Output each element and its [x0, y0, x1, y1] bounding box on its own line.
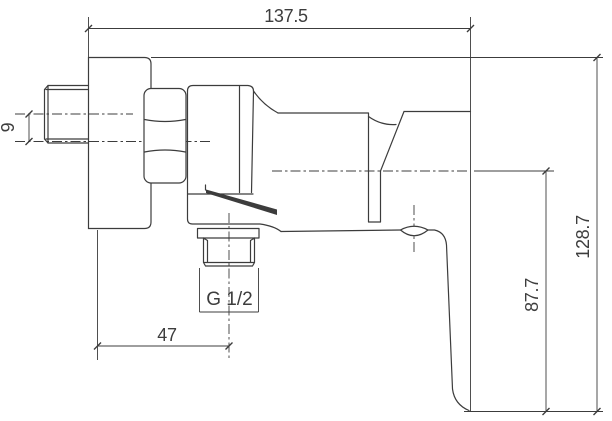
mixer-drawing-svg: 137.5 9 47 87.7 128.7 G 1/2 [0, 0, 612, 421]
dim-overall-length-label: 137.5 [264, 6, 308, 26]
dimension-lines-group [29, 17, 603, 412]
handle-collar-arc [369, 117, 397, 125]
cap-body-fillet [254, 91, 279, 113]
handle-blade [428, 230, 469, 411]
centerlines-group [15, 114, 470, 358]
dim-overall-height-label: 128.7 [573, 215, 593, 259]
dim-outlet-distance-label: 47 [157, 325, 177, 345]
escutcheon-cap [188, 86, 282, 232]
spout-wedge [206, 190, 277, 216]
fixture-outline-group [45, 58, 471, 411]
outlet-thread-size-label: G 1/2 [206, 289, 252, 310]
dimension-ticks [26, 25, 601, 415]
dim-handle-drop-label: 87.7 [522, 278, 542, 312]
outlet-flange [198, 229, 260, 239]
outlet-nipple [198, 229, 260, 267]
valve-body [278, 113, 401, 232]
pivot-screw-lens [401, 226, 429, 236]
dim-inlet-offset-label: 9 [0, 122, 18, 132]
wall-plate [89, 58, 152, 229]
technical-drawing-page: 137.5 9 47 87.7 128.7 G 1/2 [0, 0, 612, 421]
lever-handle [369, 112, 471, 411]
union-nut [144, 89, 186, 184]
